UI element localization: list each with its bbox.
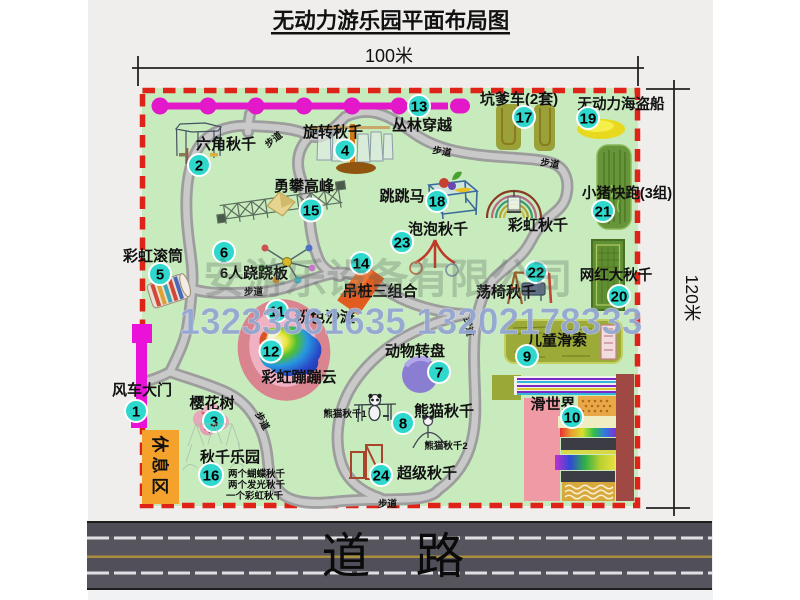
svg-text:小猪快跑(3组): 小猪快跑(3组) [582,184,672,202]
svg-text:安游乐设备有限公司: 安游乐设备有限公司 [204,256,573,302]
svg-text:无动力游乐园平面布局图: 无动力游乐园平面布局图 [273,8,510,33]
svg-text:12: 12 [263,344,280,361]
svg-text:风车大门: 风车大门 [112,381,172,399]
svg-text:16: 16 [203,468,220,485]
svg-text:15: 15 [303,203,320,220]
svg-text:9: 9 [523,349,531,366]
svg-text:跳跳马: 跳跳马 [379,187,424,205]
svg-text:2: 2 [195,158,203,175]
svg-text:勇攀高峰: 勇攀高峰 [274,177,335,195]
svg-text:道: 道 [321,530,370,584]
svg-text:两个发光秋千: 两个发光秋千 [228,479,286,491]
svg-text:熊猫秋千2: 熊猫秋千2 [424,440,467,452]
svg-text:7: 7 [435,365,443,382]
svg-text:彩虹蹦蹦云: 彩虹蹦蹦云 [260,368,336,386]
svg-text:一个彩虹秋千: 一个彩虹秋千 [226,490,284,502]
svg-text:120米: 120米 [682,275,702,322]
svg-text:17: 17 [516,110,533,127]
svg-text:21: 21 [595,204,612,221]
svg-text:13: 13 [411,99,428,116]
svg-text:丛林穿越: 丛林穿越 [392,116,453,134]
svg-text:路: 路 [415,530,464,584]
svg-text:24: 24 [373,468,390,485]
svg-text:网红大秋千: 网红大秋千 [580,266,653,284]
svg-text:23: 23 [394,235,411,252]
svg-text:1: 1 [132,404,140,421]
svg-text:10: 10 [564,410,581,427]
svg-text:动物转盘: 动物转盘 [385,342,445,360]
svg-text:旋转秋千: 旋转秋千 [302,123,363,141]
svg-text:坑爹车(2套): 坑爹车(2套) [480,90,558,108]
svg-text:熊猫秋千: 熊猫秋千 [414,402,474,420]
svg-text:5: 5 [156,267,164,284]
svg-text:18: 18 [429,194,446,211]
svg-text:19: 19 [580,111,597,128]
svg-text:100米: 100米 [365,46,413,66]
svg-text:彩虹秋千: 彩虹秋千 [507,216,568,234]
svg-text:彩虹滚筒: 彩虹滚筒 [122,247,183,265]
svg-text:熊猫秋千1: 熊猫秋千1 [323,408,367,420]
svg-text:13233861635 13202178333: 13233861635 13202178333 [180,301,643,342]
svg-text:4: 4 [341,143,350,160]
svg-text:泡泡秋千: 泡泡秋千 [408,220,468,238]
svg-text:休息区: 休息区 [150,435,170,499]
svg-text:超级秋千: 超级秋千 [396,464,457,482]
svg-text:8: 8 [399,416,407,433]
svg-text:步道: 步道 [378,498,398,510]
svg-text:六角秋千: 六角秋千 [196,135,256,153]
svg-text:两个蝴蝶秋千: 两个蝴蝶秋千 [228,468,286,480]
